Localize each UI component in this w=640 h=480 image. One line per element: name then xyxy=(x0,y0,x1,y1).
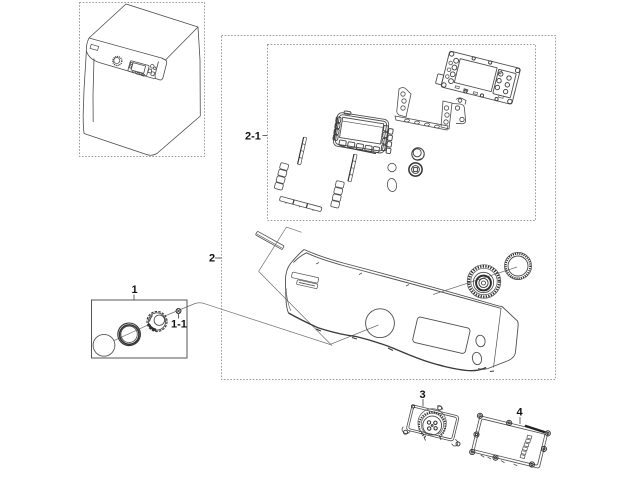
svg-text:1: 1 xyxy=(132,284,138,296)
svg-text:2-1: 2-1 xyxy=(245,131,261,143)
svg-text:1-1: 1-1 xyxy=(171,319,187,331)
svg-text:2: 2 xyxy=(209,253,215,265)
svg-text:4: 4 xyxy=(517,407,524,419)
